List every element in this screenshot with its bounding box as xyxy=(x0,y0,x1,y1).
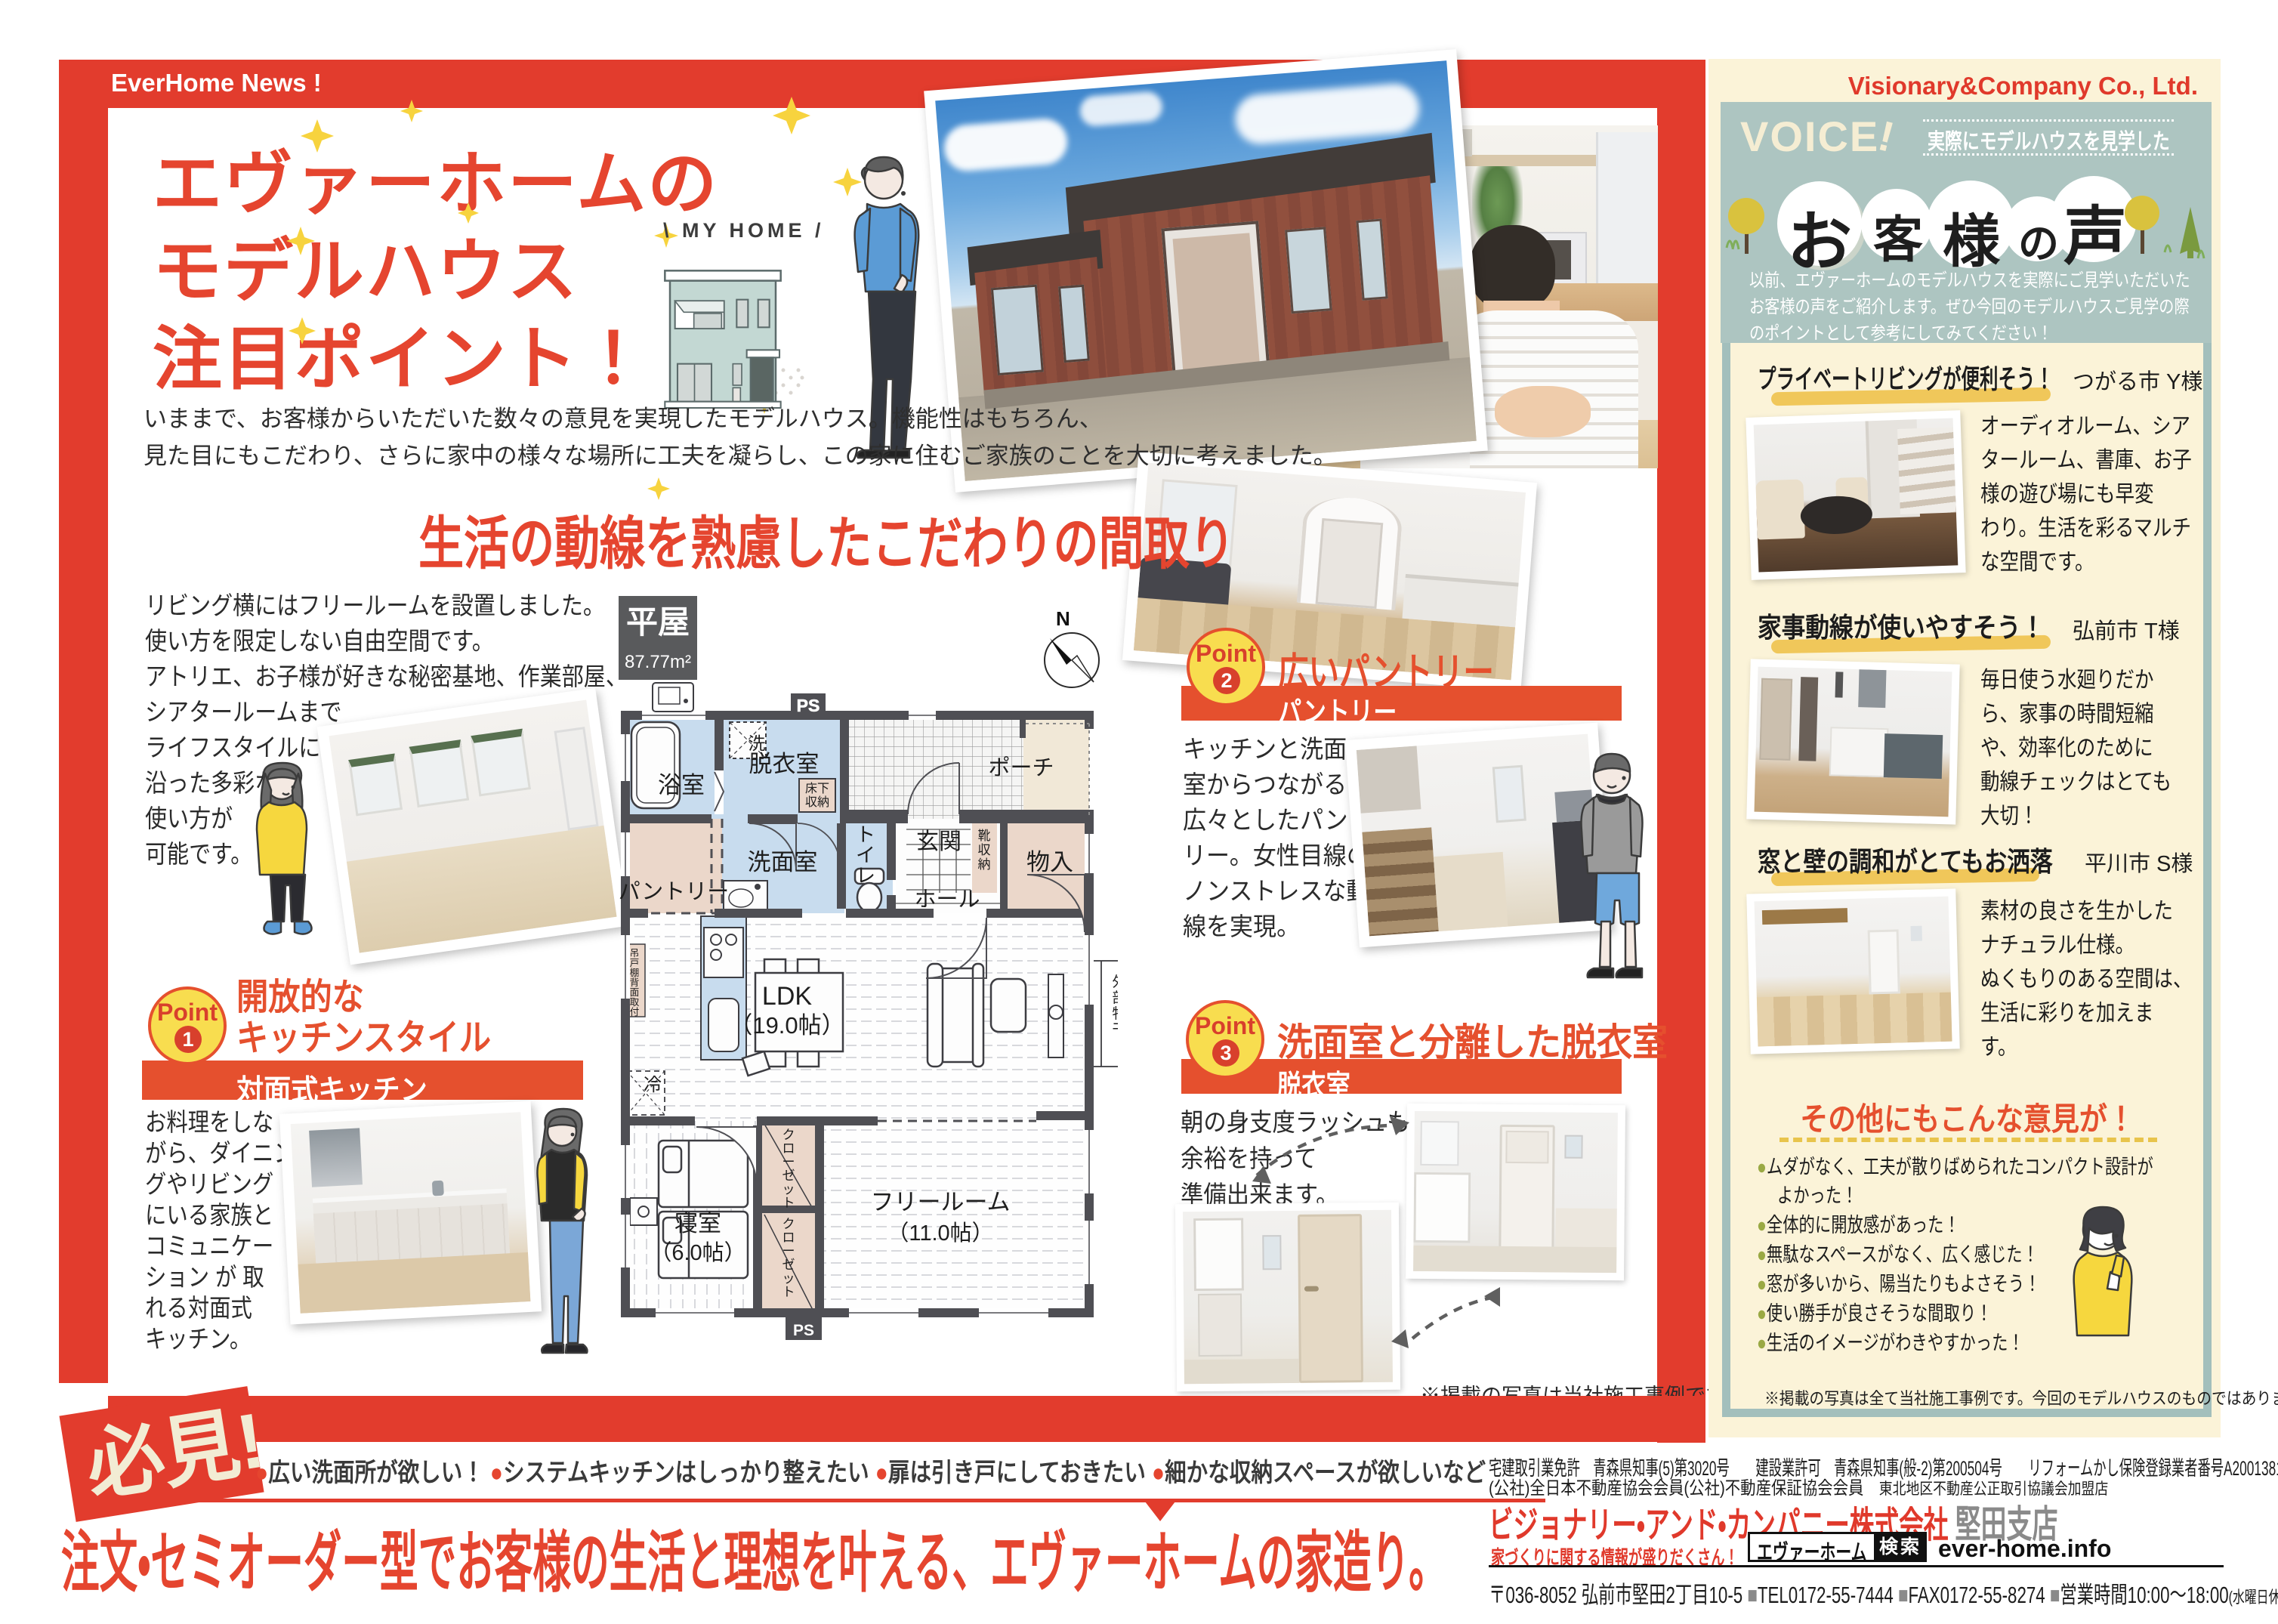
svg-text:クローゼット: クローゼット xyxy=(782,1217,795,1299)
svg-text:床下: 床下 xyxy=(805,782,829,795)
svg-text:（11.0帖）: （11.0帖） xyxy=(887,1221,993,1246)
svg-text:パントリー: パントリー xyxy=(619,880,729,904)
svg-text:LDK: LDK xyxy=(762,982,812,1011)
svg-text:N: N xyxy=(1056,607,1070,630)
svg-text:ポーチ: ポーチ xyxy=(988,755,1054,780)
svg-text:洗: 洗 xyxy=(749,733,766,753)
svg-text:洗面室: 洗面室 xyxy=(748,849,818,875)
svg-text:収納: 収納 xyxy=(805,795,829,809)
svg-text:浴室: 浴室 xyxy=(658,772,705,798)
svg-text:（19.0帖）: （19.0帖） xyxy=(729,1012,844,1039)
svg-text:外部物干: 外部物干 xyxy=(1112,974,1118,1038)
svg-text:トイレ: トイレ xyxy=(856,823,875,887)
svg-text:玄関: 玄関 xyxy=(916,829,962,854)
svg-text:PS: PS xyxy=(797,696,820,715)
svg-text:物入: 物入 xyxy=(1026,849,1073,875)
svg-text:ホール: ホール xyxy=(914,888,980,912)
svg-text:靴収納: 靴収納 xyxy=(978,829,991,872)
svg-text:寝室: 寝室 xyxy=(674,1210,721,1237)
svg-text:脱衣室: 脱衣室 xyxy=(749,751,820,777)
svg-text:87.77m²: 87.77m² xyxy=(625,652,691,672)
svg-text:冷: 冷 xyxy=(644,1075,662,1095)
svg-text:PS: PS xyxy=(793,1322,814,1339)
svg-text:平屋: 平屋 xyxy=(626,604,690,640)
svg-text:フリールーム: フリールーム xyxy=(870,1189,1010,1215)
svg-text:クローゼット: クローゼット xyxy=(782,1128,795,1210)
svg-text:吊戸棚背面取付: 吊戸棚背面取付 xyxy=(630,948,640,1017)
svg-text:（6.0帖）: （6.0帖） xyxy=(650,1240,745,1265)
